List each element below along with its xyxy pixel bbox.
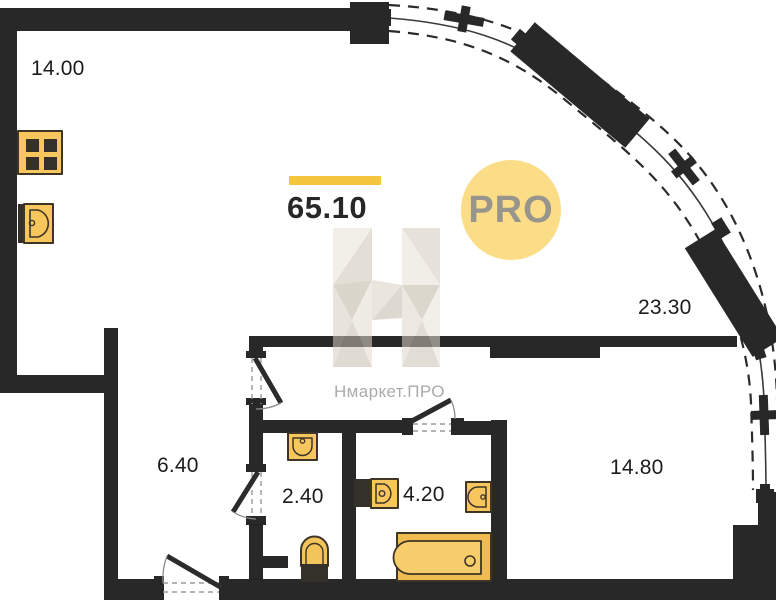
wall-hallway-right-3	[249, 525, 263, 582]
wall-living-south-thick	[490, 346, 600, 358]
door-swing-arc	[451, 400, 455, 419]
wall-hallway-right-2	[249, 404, 263, 466]
stove-icon	[18, 131, 62, 174]
wall-wc-bath-divider	[342, 433, 356, 582]
door-b-jamb-left	[402, 418, 413, 435]
wall-bottom-left	[0, 375, 118, 393]
wc-sink-icon	[288, 433, 317, 460]
kitchen-sink-icon	[18, 204, 53, 243]
pro-badge: PRO	[461, 160, 561, 260]
door-a-jamb-top	[246, 351, 266, 358]
wall-sink-icon	[466, 482, 491, 512]
washing-machine-icon	[354, 479, 371, 507]
door-a-jamb-bottom	[246, 398, 266, 405]
room-label-hallway: 6.40	[157, 454, 199, 478]
room-label-wc: 2.40	[282, 485, 324, 509]
wall-living-south	[249, 336, 737, 347]
curved-window-facade	[382, 3, 776, 503]
door-leaf	[255, 358, 281, 403]
door-bathroom	[412, 400, 455, 431]
door-wc	[233, 472, 261, 519]
wall-bottom-a	[104, 579, 155, 600]
bathroom-sink-icon	[371, 479, 398, 508]
window-mullion-cross-3	[750, 395, 776, 436]
door-c-jamb-bottom	[246, 516, 266, 525]
wall-bottom-b	[229, 579, 737, 600]
pro-badge-label: PRO	[468, 189, 553, 232]
door-leaf	[233, 472, 258, 512]
window-bottom-post	[756, 489, 774, 503]
door-swing-arc	[163, 556, 167, 583]
wall-left	[0, 8, 17, 393]
floor-plan-canvas: 65.10 PRO Нмаркет.ПРО 14.00 23.30 14.80 …	[0, 0, 776, 600]
window-mullion-cross-2	[661, 143, 706, 191]
room-label-living: 23.30	[638, 296, 692, 320]
total-area-accent-bar	[289, 176, 381, 185]
door-leaf	[412, 400, 451, 421]
room-label-bedroom: 14.80	[610, 456, 664, 480]
wall-bath-right	[491, 420, 507, 582]
room-label-bathroom: 4.20	[403, 483, 445, 507]
wall-right-corner-block	[733, 525, 776, 600]
room-label-kitchen: 14.00	[31, 57, 85, 81]
window-start-tick	[382, 9, 391, 26]
facade-pier-1	[510, 22, 649, 148]
duct-box	[263, 556, 288, 568]
wall-hallway-left	[104, 328, 118, 582]
wall-top	[0, 8, 360, 31]
door-entry	[163, 556, 222, 592]
bathtub-icon	[394, 533, 491, 581]
toilet-icon	[301, 537, 328, 583]
watermark-title: Нмаркет.ПРО	[334, 382, 445, 402]
wall-bath-top	[249, 420, 404, 433]
window-bottom-post-tick	[760, 484, 770, 491]
total-area-label: 65.10	[287, 190, 367, 226]
window-mullion-cross-1	[442, 3, 486, 36]
